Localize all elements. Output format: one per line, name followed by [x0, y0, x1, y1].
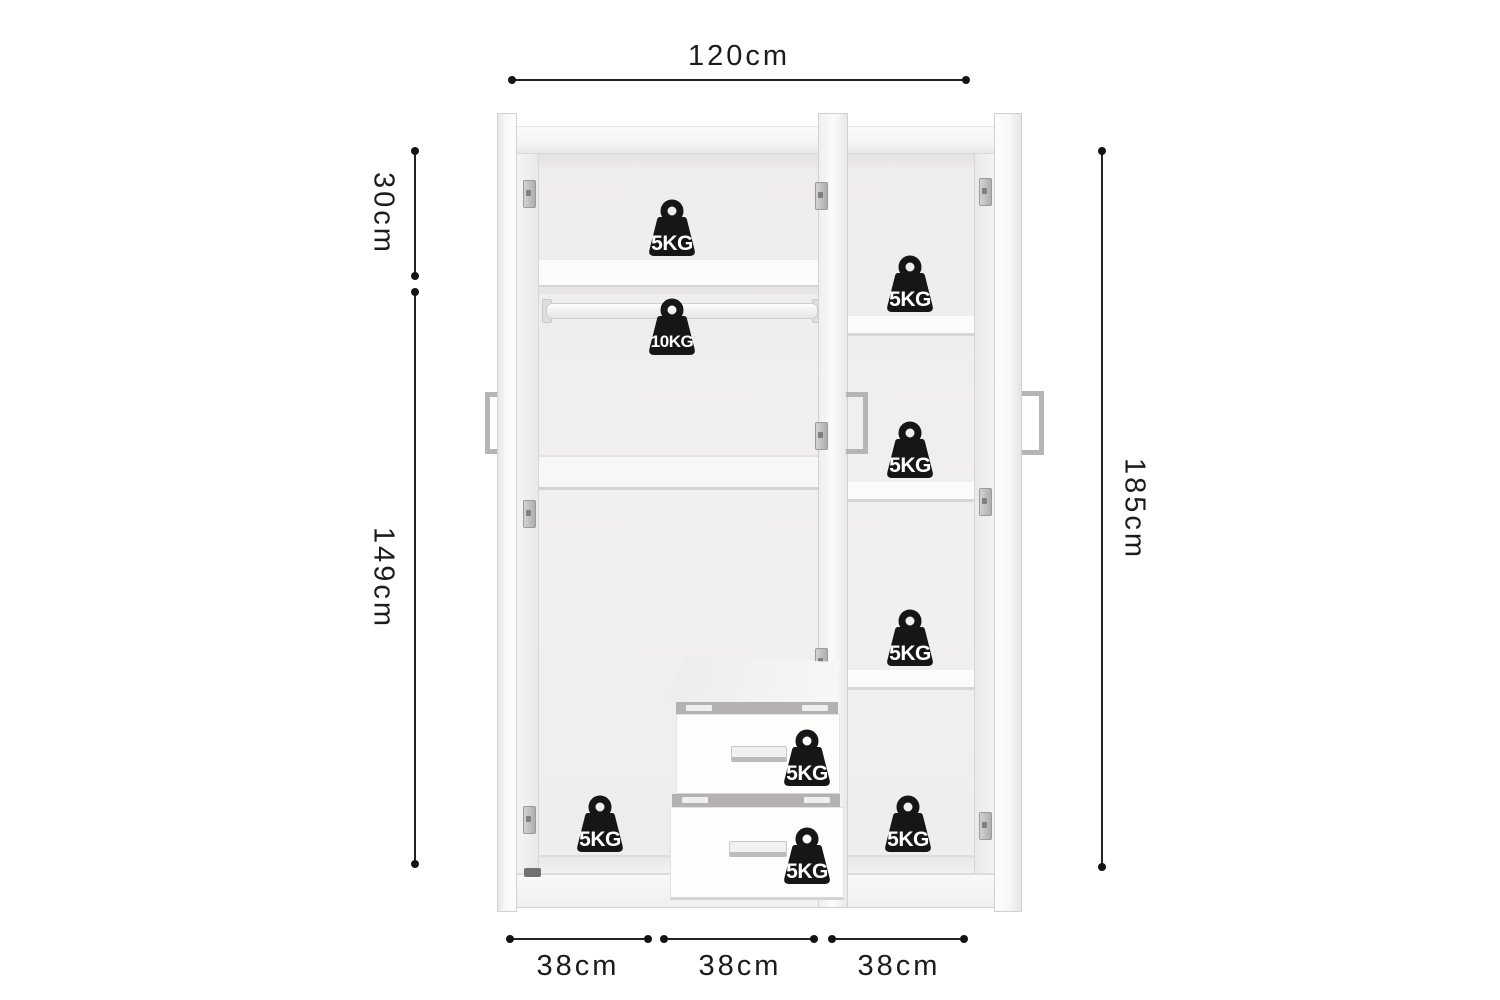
dimension-label-width: 120cm — [639, 40, 839, 73]
svg-text:10KG: 10KG — [651, 332, 694, 351]
dimension-label-section-1: 38cm — [498, 950, 658, 983]
dimension-dot — [411, 860, 419, 868]
weight-capacity-icon-top-drawer: 5KG — [779, 728, 835, 790]
dimension-label-section-2: 38cm — [660, 950, 820, 983]
dimension-line-upper-height — [414, 151, 416, 276]
dimension-dot — [411, 147, 419, 155]
weight-capacity-icon-right-shelf-3: 5KG — [882, 608, 938, 670]
dimension-dot — [1098, 863, 1106, 871]
right-shelf-2 — [846, 482, 974, 502]
drawer-runner — [804, 797, 830, 803]
carcass-top-panel — [516, 126, 996, 154]
weight-capacity-icon-hanging-rail: 10KG — [644, 297, 700, 359]
dimension-label-lower-height: 149cm — [366, 292, 400, 864]
left-door-panel — [497, 113, 517, 912]
right-shelf-1 — [846, 316, 974, 336]
drawer-runner — [686, 705, 712, 711]
left-top-shelf-shadow — [538, 287, 824, 294]
dimension-dot — [660, 935, 668, 943]
hinge — [523, 180, 536, 208]
drawer-runner — [682, 797, 708, 803]
dimension-label-total-height: 185cm — [1117, 151, 1151, 867]
left-top-shelf — [538, 260, 824, 288]
right-compartment-floor — [846, 855, 974, 875]
weight-capacity-icon-bottom-drawer: 5KG — [779, 826, 835, 888]
svg-text:5KG: 5KG — [889, 454, 931, 477]
dimension-dot — [411, 272, 419, 280]
weight-capacity-icon-right-floor: 5KG — [880, 794, 936, 856]
svg-text:5KG: 5KG — [786, 762, 828, 785]
drawer-runner — [802, 705, 828, 711]
weight-capacity-icon-right-shelf-1: 5KG — [882, 254, 938, 316]
dimension-line-total-height — [1101, 151, 1103, 867]
dimension-line-section-1 — [510, 938, 648, 940]
dimension-dot — [411, 288, 419, 296]
dimension-dot — [506, 935, 514, 943]
dimension-dot — [828, 935, 836, 943]
hinge — [979, 488, 992, 516]
hinge — [523, 806, 536, 834]
dimension-dot — [810, 935, 818, 943]
svg-text:5KG: 5KG — [579, 828, 621, 851]
interior-top-shadow — [538, 152, 974, 167]
weight-capacity-icon-left-top-shelf: 5KG — [644, 198, 700, 260]
weight-capacity-icon-right-shelf-2: 5KG — [882, 420, 938, 482]
right-shelf-3 — [846, 670, 974, 690]
right-door-handle — [1019, 391, 1044, 455]
svg-text:5KG: 5KG — [889, 642, 931, 665]
hinge — [815, 182, 828, 210]
dimension-line-section-2 — [664, 938, 814, 940]
hinge — [815, 422, 828, 450]
right-door-panel — [994, 113, 1022, 912]
dimension-dot — [1098, 147, 1106, 155]
dimension-label-section-3: 38cm — [819, 950, 979, 983]
dimension-line-lower-height — [414, 292, 416, 864]
svg-text:5KG: 5KG — [889, 288, 931, 311]
drawer-gap — [676, 702, 838, 714]
drawer-unit-top — [668, 656, 840, 702]
dimension-label-upper-height: 30cm — [366, 150, 400, 277]
middle-door-handle — [846, 392, 868, 454]
dimension-dot — [644, 935, 652, 943]
dimension-line-section-3 — [832, 938, 964, 940]
drawer-gap — [672, 794, 840, 807]
weight-capacity-icon-left-floor: 5KG — [572, 794, 628, 856]
svg-text:5KG: 5KG — [887, 828, 929, 851]
dimension-dot — [960, 935, 968, 943]
dimension-line-width — [512, 79, 966, 81]
hinge — [523, 500, 536, 528]
hinge — [979, 178, 992, 206]
hinge — [979, 812, 992, 840]
floor-bracket — [524, 868, 541, 877]
left-middle-divider-shelf — [538, 455, 824, 490]
svg-text:5KG: 5KG — [651, 232, 693, 255]
wardrobe-dimension-diagram: 120cm 30cm 149cm 185cm 38cm 38cm 38cm — [0, 0, 1500, 1000]
svg-text:5KG: 5KG — [786, 860, 828, 883]
dimension-dot — [962, 76, 970, 84]
dimension-dot — [508, 76, 516, 84]
